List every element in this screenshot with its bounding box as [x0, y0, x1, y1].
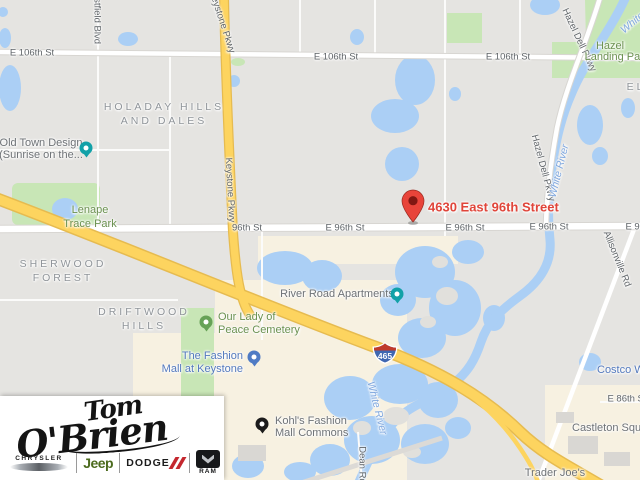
street-label-96th-short: 96th St: [232, 223, 262, 234]
brand-logos-row: CHRYSLER Jeep DODGE RAM: [8, 450, 220, 475]
area-label-holaday-2: AND DALES: [121, 115, 208, 127]
street-label-e106th-2: E 106th St: [314, 52, 358, 63]
street-label-westfield-blvd: Westfield Blvd: [92, 0, 103, 44]
park-label-lenape-1[interactable]: Lenape: [72, 204, 109, 216]
poi-label-costco[interactable]: Costco Wholesale: [597, 364, 640, 376]
street-label-e96th-1: E 96th St: [325, 223, 364, 234]
poi-label-castleton-square[interactable]: Castleton Square: [572, 422, 640, 434]
ram-wordmark: RAM: [199, 468, 217, 475]
poi-label-old-town-1[interactable]: Old Town Design: [0, 137, 82, 149]
chrysler-wings-icon: [10, 463, 68, 471]
area-label-holaday-1: HOLADAY HILLS: [104, 101, 224, 113]
chrysler-wordmark: CHRYSLER: [15, 455, 63, 462]
poi-label-kohls-2[interactable]: Mall Commons: [275, 427, 348, 439]
ram-logo: RAM: [196, 450, 220, 475]
river-road-apartments-pin-icon[interactable]: [391, 288, 404, 301]
marker-address-label: 4630 East 96th Street: [428, 200, 559, 215]
fashion-mall-pin-icon[interactable]: [248, 351, 261, 364]
location-pin-icon[interactable]: [400, 188, 426, 226]
street-label-e106th-1: E 106th St: [10, 48, 54, 59]
park-label-lenape-2[interactable]: Trace Park: [63, 218, 116, 230]
chrysler-logo: CHRYSLER: [8, 455, 70, 471]
area-label-partial-east: EL: [627, 81, 640, 93]
dealer-logo: Tom O'Brien CHRYSLER Jeep DODGE RAM: [0, 396, 224, 480]
brand-divider: [76, 453, 77, 473]
svg-text:465: 465: [378, 351, 392, 361]
cemetery-pin-icon[interactable]: [200, 316, 213, 329]
brand-divider: [189, 453, 190, 473]
street-label-e96th-4: E 96th St: [625, 222, 640, 233]
poi-label-old-town-2[interactable]: (Sunrise on the...: [0, 149, 83, 161]
poi-label-trader-joes[interactable]: Trader Joe's: [525, 467, 585, 479]
area-label-driftwood-2: HILLS: [122, 320, 166, 332]
dodge-wordmark: DODGE: [126, 457, 170, 469]
poi-label-kohls-1[interactable]: Kohl's Fashion: [275, 415, 347, 427]
area-label-sherwood-2: FOREST: [33, 272, 94, 284]
street-label-dean-rd: Dean Rd: [357, 446, 368, 480]
street-label-e96th-2: E 96th St: [445, 223, 484, 234]
street-label-e106th-3: E 106th St: [486, 52, 530, 63]
dodge-logo: DODGE: [126, 457, 183, 469]
ram-shield-icon: [196, 450, 220, 468]
park-label-hazel-landing-2[interactable]: Landing Park: [585, 51, 640, 63]
poi-label-cemetery-1[interactable]: Our Lady of: [218, 311, 275, 323]
kohls-logo-icon[interactable]: [256, 418, 269, 431]
area-label-driftwood-1: DRIFTWOOD: [98, 306, 190, 318]
area-label-sherwood-1: SHERWOOD: [20, 258, 107, 270]
street-label-e86th: E 86th St: [607, 394, 640, 405]
poi-label-fashion-mall-1[interactable]: The Fashion: [182, 350, 243, 362]
poi-label-river-road-apartments[interactable]: River Road Apartments: [280, 288, 394, 300]
jeep-wordmark: Jeep: [83, 455, 113, 471]
old-town-pin-icon[interactable]: [80, 142, 93, 155]
map-screenshot: 465 E 106th St E 106th St E 106th St 96t…: [0, 0, 640, 480]
poi-label-fashion-mall-2[interactable]: Mall at Keystone: [162, 363, 243, 375]
street-label-e96th-3: E 96th St: [529, 222, 568, 233]
brand-divider: [119, 453, 120, 473]
poi-label-cemetery-2[interactable]: Peace Cemetery: [218, 324, 300, 336]
